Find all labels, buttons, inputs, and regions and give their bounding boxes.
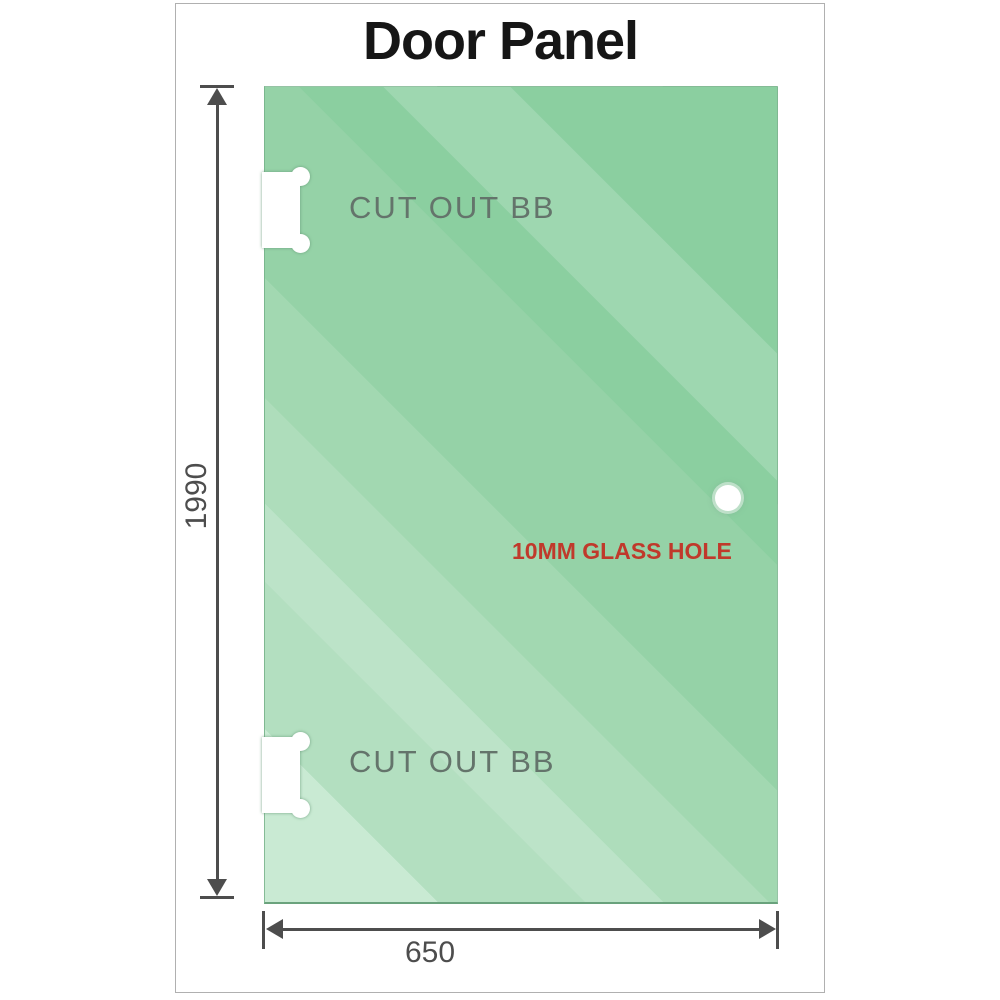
glass-hole-icon: [715, 485, 741, 511]
width-dimension-label: 650: [380, 936, 480, 970]
arrow-right-icon: [759, 919, 776, 939]
width-dimension-line: [280, 928, 762, 931]
door-panel-diagram: Door Panel CUT OUT BB CUT OUT BB 10MM GL…: [0, 0, 1000, 1000]
width-dimension-tick-right: [776, 911, 779, 949]
hinge-cutout-bottom: [262, 732, 310, 818]
cutout-label-bottom: CUT OUT BB: [349, 744, 556, 780]
height-dimension-label: 1990: [180, 446, 214, 546]
height-dimension-tick-bottom: [200, 896, 234, 899]
glass-hole-label: 10MM GLASS HOLE: [512, 538, 732, 565]
cutout-label-top: CUT OUT BB: [349, 190, 556, 226]
page-title: Door Panel: [175, 10, 826, 72]
arrow-up-icon: [207, 88, 227, 105]
arrow-down-icon: [207, 879, 227, 896]
arrow-left-icon: [266, 919, 283, 939]
width-dimension-tick-left: [262, 911, 265, 949]
hinge-cutout-top: [262, 167, 310, 253]
height-dimension-line: [216, 103, 219, 882]
cutout-slot: [262, 737, 300, 813]
cutout-slot: [262, 172, 300, 248]
